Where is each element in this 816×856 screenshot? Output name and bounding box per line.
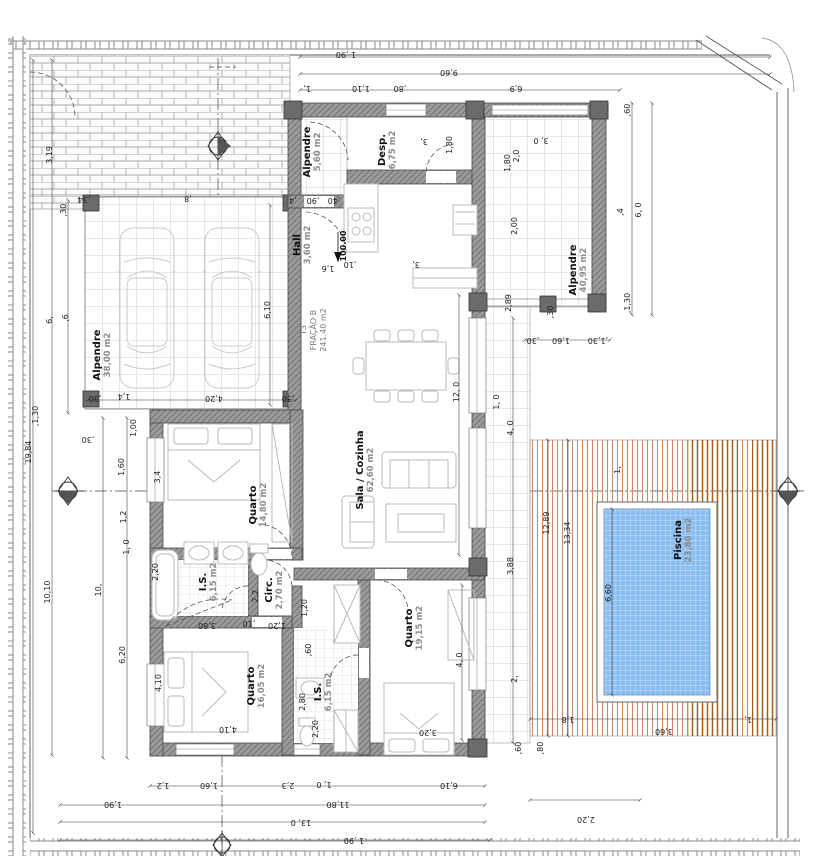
unit-area-label: 241.40 m2: [319, 308, 328, 351]
room-name-label: Piscina: [673, 520, 684, 560]
floorplan-sheet: Alpendre38,00 m2Alpendre5,60 m2Desp.6,75…: [0, 0, 816, 856]
corner-curve: [762, 38, 794, 92]
dimension-label: ,1,30: [31, 406, 40, 426]
dimension-label: ,1,30: [623, 293, 632, 313]
dimension-label: 1,8: [562, 715, 575, 724]
dimension-label: 4,10: [219, 725, 237, 734]
room-name-label: Circ.: [264, 577, 275, 602]
dimension-label: 12,89: [542, 512, 551, 535]
dimension-label: ,60: [623, 104, 632, 117]
dimension-label: 3,60: [655, 727, 673, 736]
dimension-label: ,10: [243, 619, 256, 628]
dimension-label: 1,20: [300, 599, 309, 617]
dimension-label: ,30: [527, 336, 540, 345]
dimension-label: ,60: [514, 742, 523, 755]
east-walkway: [485, 307, 530, 743]
dimension-label: 12, 0: [452, 382, 461, 402]
room-name-label: Quarto: [248, 485, 259, 524]
fridge: [453, 205, 477, 235]
dimension-label: ,30: [59, 204, 68, 217]
paved-entry: [30, 55, 290, 195]
dimension-label: 1,60: [200, 781, 218, 790]
dimension-label: 2,0: [512, 150, 521, 163]
dimension-label: ,4: [289, 196, 297, 205]
dimension-label: 10,: [94, 584, 103, 597]
dimension-label: 1,10: [352, 84, 370, 93]
dimension-label: 1 ,90: [344, 836, 364, 845]
door-quarto3: [376, 580, 408, 612]
dimension-label: ,30: [282, 394, 295, 403]
unit-fraction-label: FRAÇÃO B: [308, 310, 318, 350]
dimension-label: 1,2: [119, 511, 128, 524]
dimension-label: 3, 0: [533, 136, 548, 145]
dining-table: [353, 330, 459, 402]
dimension-label: 6,9: [510, 84, 523, 93]
dimension-label: 2,89: [504, 294, 513, 312]
dimension-label: 6, 0: [634, 202, 643, 217]
dimension-label: 10,10: [43, 581, 52, 604]
dimension-label: 2,: [510, 675, 519, 683]
dimension-label: ,30: [82, 435, 95, 444]
room-area-label: 6,15 m2: [209, 563, 219, 602]
dimension-label: ,30: [546, 306, 555, 319]
unit-type-label: T3: [299, 325, 308, 336]
dimension-label: 2,20: [151, 563, 160, 581]
stove-icon: [348, 208, 374, 242]
room-area-label: 62,60 m2: [366, 448, 376, 493]
dimension-label: ,60: [304, 644, 313, 657]
dimension-label: 1,80: [445, 136, 454, 154]
dimension-label: 4, 0: [455, 652, 464, 667]
dimension-label: 1,: [744, 715, 752, 724]
dimension-label: ,30: [89, 394, 102, 403]
dimension-label: 1 ,90: [336, 50, 356, 59]
room-area-label: 16,05 m2: [257, 664, 267, 709]
dimension-label: 6,10: [263, 301, 272, 319]
dimension-label: ,80: [394, 84, 407, 93]
dimension-label: 2,00: [510, 217, 519, 235]
dimension-label: ,90: [307, 196, 320, 205]
dimension-label: 3,80: [198, 621, 216, 630]
dimension-label: 3,: [420, 137, 428, 146]
room-area-label: 40,95 m2: [579, 248, 589, 293]
dimension-label: ,34: [78, 195, 91, 204]
dimension-label: 1,90: [104, 800, 122, 809]
dimension-label: 1,20: [268, 621, 286, 630]
dimension-label: 4,20: [205, 394, 223, 403]
dimension-label: 2,2: [251, 590, 260, 603]
dimension-label: 13, 0: [291, 818, 311, 827]
floorplan-drawing: Alpendre38,00 m2Alpendre5,60 m2Desp.6,75…: [0, 0, 816, 856]
room-name-label: Desp.: [377, 134, 388, 166]
room-area-label: 2,70 m2: [275, 571, 285, 610]
dimension-label: 3,: [412, 260, 420, 269]
dimension-label: 4,10: [154, 674, 163, 692]
room-area-label: 19,15 m2: [415, 606, 425, 651]
dimension-label: 11,80: [327, 800, 350, 809]
room-area-label: 5,60 m2: [313, 133, 323, 172]
room-area-label: 6,15 m2: [324, 673, 334, 712]
dimension-label: 1,2: [157, 781, 170, 790]
room-area-label: 3,60 m2: [303, 226, 313, 265]
bed-quarto3: [384, 683, 454, 755]
dimension-label: 2,20: [311, 720, 320, 738]
dimension-label: 1,6: [322, 264, 335, 273]
dimension-label: 1, 0: [122, 539, 131, 554]
room-name-label: Sala / Cozinha: [355, 430, 366, 509]
dimension-label: 3,88: [506, 557, 515, 575]
room-area-label: 38,00 m2: [103, 333, 113, 378]
dimension-label: 6,20: [118, 646, 127, 664]
dimension-label: 2,80: [298, 693, 307, 711]
dimension-label: 1, 0: [492, 394, 501, 409]
dimension-label: 6,60: [604, 584, 613, 602]
fence-bottom: [30, 838, 800, 856]
dimension-label: ,6: [61, 314, 70, 322]
room-name-label: I.S.: [198, 573, 209, 592]
room-area-label: 6,75 m2: [388, 131, 398, 170]
dimension-label: 6,: [45, 316, 54, 324]
bed-quarto1: [168, 424, 260, 500]
coffee-table: [386, 504, 456, 542]
room-name-label: Alpendre: [302, 126, 313, 177]
dimension-label: 19,84: [24, 441, 33, 464]
dimension-label: 2,3: [282, 781, 295, 790]
dimension-label: 1,: [613, 466, 622, 474]
room-name-label: Hall: [292, 234, 303, 256]
dimension-label: 2,20: [577, 815, 595, 824]
dimension-label: 9,60: [440, 68, 458, 77]
room-name-label: Alpendre: [92, 329, 103, 380]
dimension-label: 1, 0: [316, 780, 331, 789]
bathtub: [152, 550, 178, 620]
dimension-label: 1,: [303, 84, 311, 93]
room-name-label: Quarto: [246, 666, 257, 705]
dimension-label: ,1,30: [588, 336, 608, 345]
toilet-1: [250, 544, 268, 575]
dimension-label: ,40: [328, 196, 341, 205]
dimension-label: 1,60: [117, 458, 126, 476]
room-area-label: 23,80 m2: [684, 518, 694, 563]
fence-diagonal-2: [706, 36, 782, 84]
dimension-label: 13,34: [563, 522, 572, 545]
dimension-label: ,8: [184, 194, 192, 203]
wood-deck-dark-band: [752, 440, 776, 736]
dimension-label: 6,10: [440, 781, 458, 790]
fence-diagonal-1: [696, 40, 772, 90]
dimension-label: 1,00: [129, 419, 138, 437]
dimension-label: 4, 0: [506, 420, 515, 435]
section-marker-left: [52, 477, 84, 505]
dimension-label: ,4: [616, 208, 625, 216]
room-name-label: Quarto: [404, 608, 415, 647]
dimension-label: 3,19: [45, 146, 54, 164]
dimension-label: 1,60: [552, 336, 570, 345]
dimension-label: 1,4: [118, 392, 131, 401]
dimension-label: 3,20: [419, 728, 437, 737]
sofa-3seat: [382, 452, 456, 488]
dimension-label: 1,80: [503, 154, 512, 172]
room-area-label: 14,80 m2: [259, 483, 269, 528]
room-name-label: I.S.: [313, 683, 324, 702]
level-value-label: 100.00: [339, 230, 348, 261]
bed-quarto2: [164, 652, 248, 732]
dimension-label: 3,4: [153, 471, 162, 484]
room-name-label: Alpendre: [568, 244, 579, 295]
pool-area: [530, 440, 776, 736]
pool-water: [604, 509, 710, 695]
dimension-label: ,80: [536, 742, 545, 755]
